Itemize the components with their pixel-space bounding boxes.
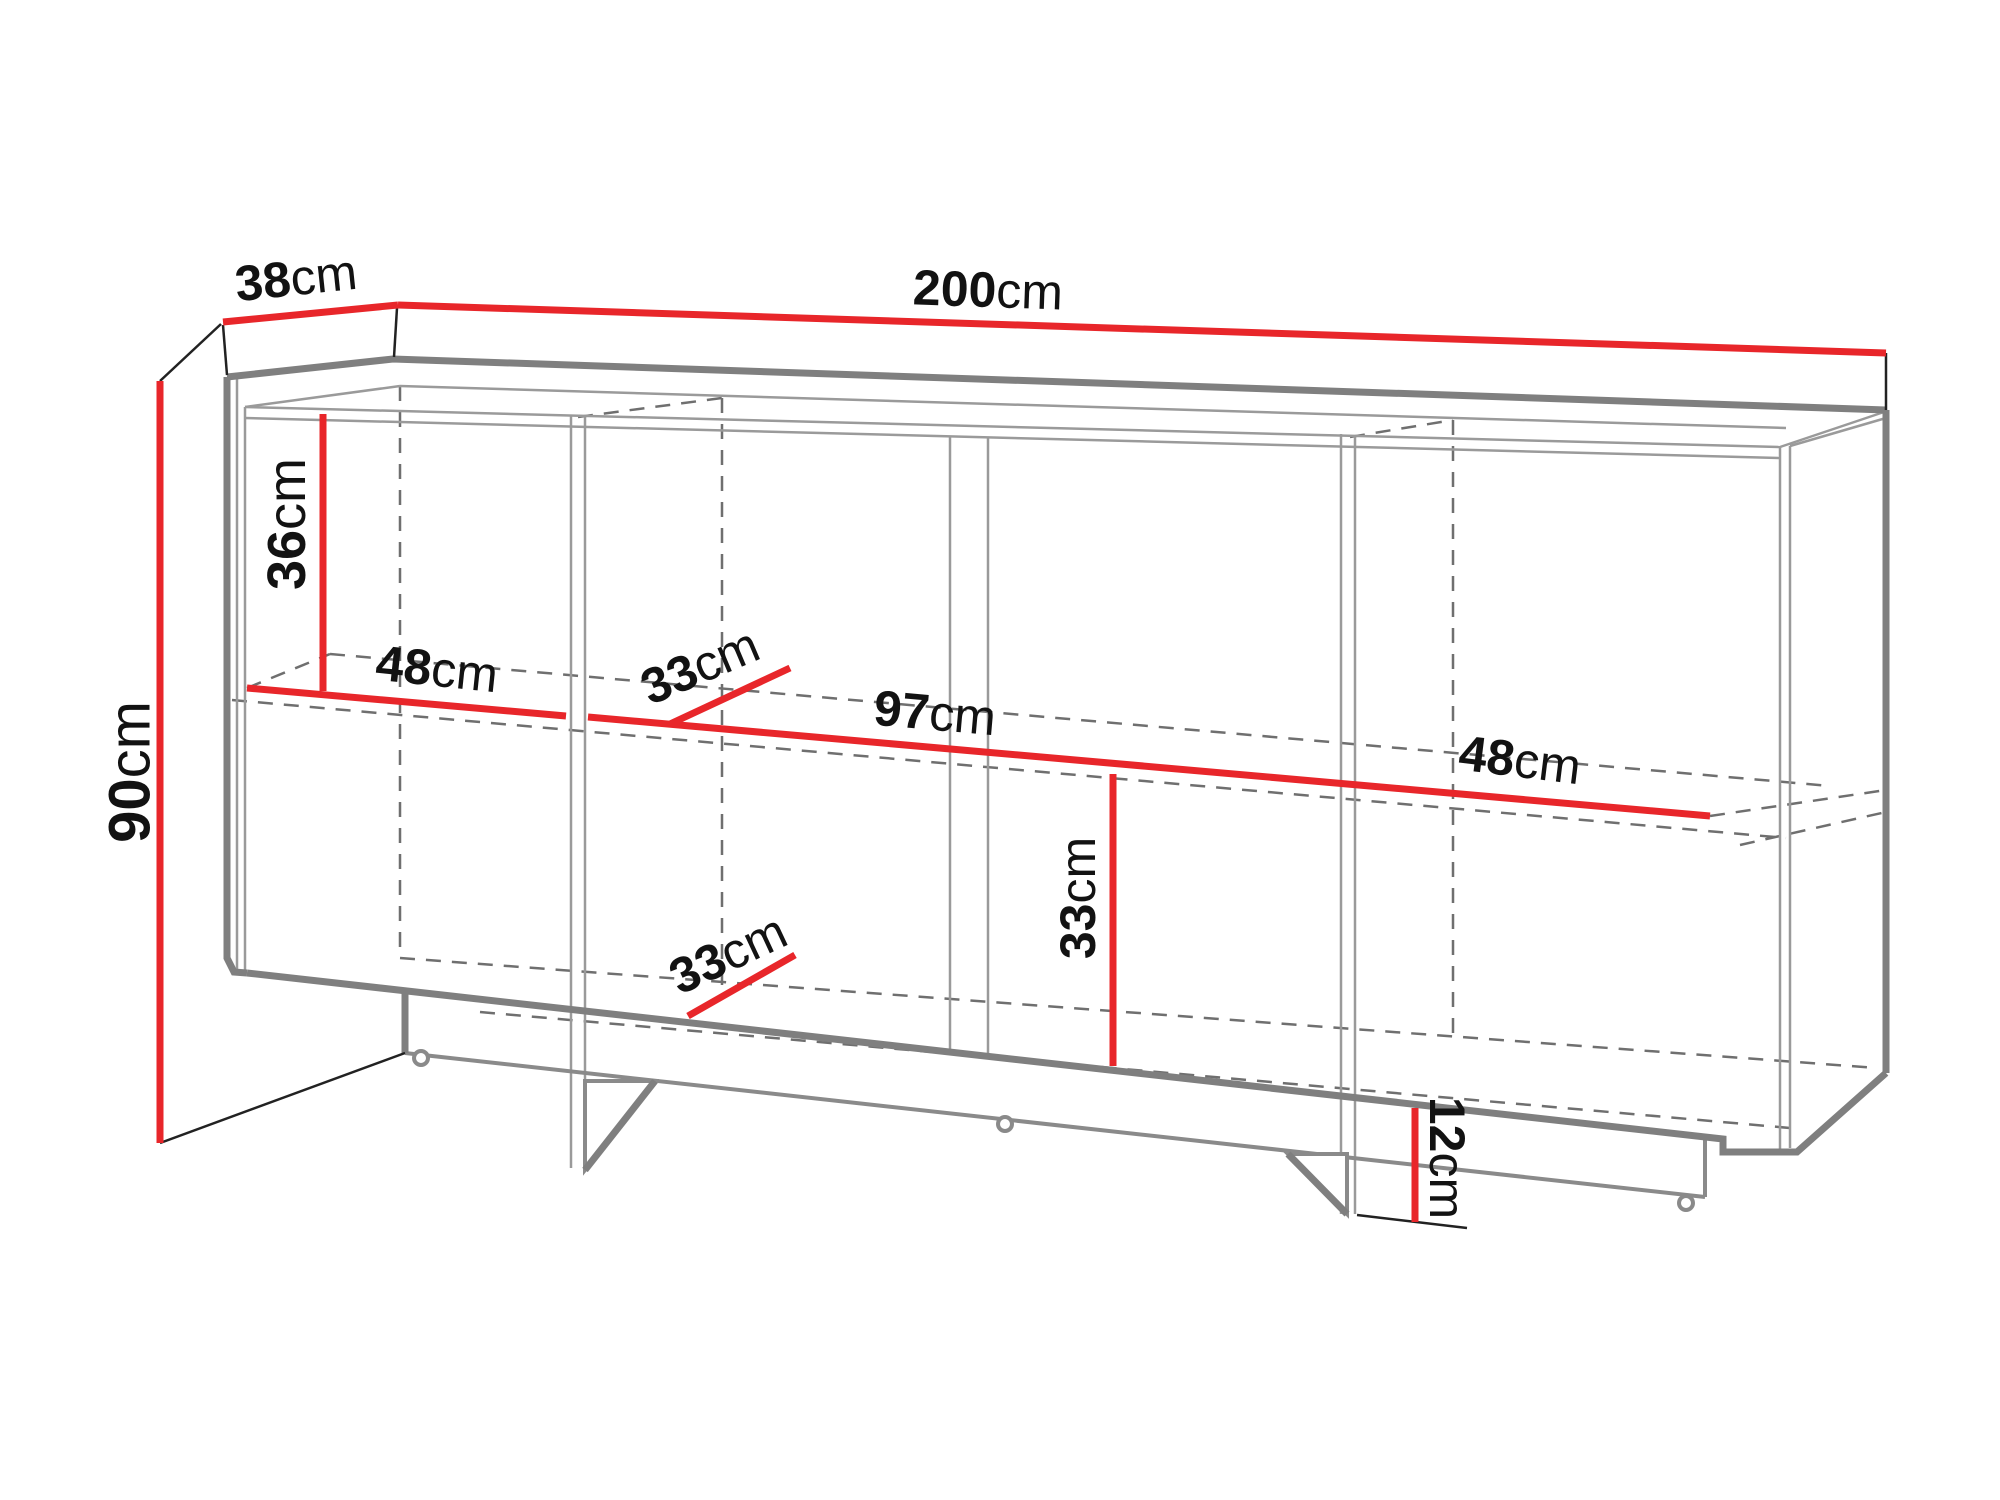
foot-middle xyxy=(998,1117,1012,1131)
dimension-label-plinth-height: 12cm xyxy=(1419,1097,1475,1219)
page: 38cm 200cm 90cm 36cm 48cm 33cm 97cm 48cm… xyxy=(0,0,2000,1500)
foot-right xyxy=(1679,1196,1693,1210)
dimension-label-height: 90cm xyxy=(98,701,163,843)
cabinet-dimension-diagram: 38cm 200cm 90cm 36cm 48cm 33cm 97cm 48cm… xyxy=(0,0,2000,1500)
dimension-label-middle-section-width: 97cm xyxy=(872,680,999,746)
foot-left xyxy=(414,1051,428,1065)
dimension-label-width: 200cm xyxy=(912,259,1064,320)
dimension-label-upper-section-height: 36cm xyxy=(257,458,317,590)
height-top-extension xyxy=(160,324,221,381)
dimension-label-depth: 38cm xyxy=(232,244,359,312)
height-bottom-extension xyxy=(160,1053,405,1143)
dimension-label-lower-section-height: 33cm xyxy=(1050,837,1106,959)
